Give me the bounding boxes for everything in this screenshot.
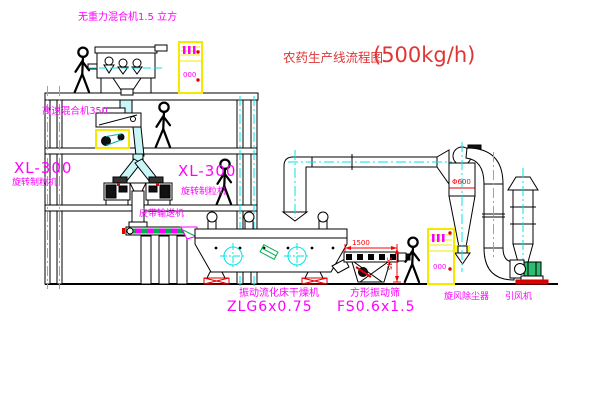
label-belt-conveyor: 皮带输送机 [139, 210, 184, 219]
granulator-discharge-pipe [129, 183, 147, 227]
drawing-title-capacity: (500kg/h) [373, 45, 475, 66]
worker-ground [405, 238, 419, 282]
label-dryer-name: 振动流化床干燥机 [239, 289, 319, 299]
label-sieve-model: FS0.6x1.5 [337, 300, 416, 314]
worker-second-floor [156, 103, 170, 147]
support-pillars [141, 236, 187, 284]
label-dryer-model: ZLG6x0.75 [227, 300, 313, 314]
label-granulator-mid-name: 旋转制粒机 [181, 188, 226, 197]
fluid-bed-dryer [181, 212, 349, 284]
label-granulator-left-name: 旋转制粒机 [12, 179, 57, 188]
worker-top-floor [75, 48, 89, 92]
dim-sieve-height: 545 [385, 257, 392, 270]
label-gravity-free-mixer: 无重力混合机1.5 立方 [78, 13, 177, 23]
label-high-speed-mixer: 高速混合机350 [42, 107, 108, 117]
control-cabinet-top [179, 42, 202, 93]
induced-draft-fan [510, 260, 548, 284]
vibrating-sieve [344, 252, 410, 282]
label-granulator-mid-model: XL-300 [178, 164, 236, 179]
belt-conveyor [122, 227, 190, 235]
label-granulator-left-model: XL-300 [14, 161, 72, 176]
dim-sieve-length: 1500 [352, 240, 370, 247]
cabinet-top-display: 000 [183, 72, 196, 79]
exhaust-duct [283, 150, 452, 221]
granulator-right [146, 177, 172, 205]
granulator-left [104, 177, 130, 205]
gravity-free-mixer [88, 45, 167, 95]
cad-drawing-canvas: 无重力混合机1.5 立方 农药生产线流程图 (500kg/h) 高速混合机350… [0, 0, 600, 403]
label-cyclone: 旋风除尘器 [444, 293, 489, 302]
label-sieve-name: 方形振动筛 [350, 289, 400, 299]
label-fan: 引风机 [505, 293, 532, 302]
dim-cyclone-diameter: Φ600 [452, 179, 471, 186]
cabinet-right-display: 000 [433, 264, 446, 271]
control-cabinet-right [428, 229, 454, 284]
drawing-title: 农药生产线流程图 [283, 52, 383, 65]
